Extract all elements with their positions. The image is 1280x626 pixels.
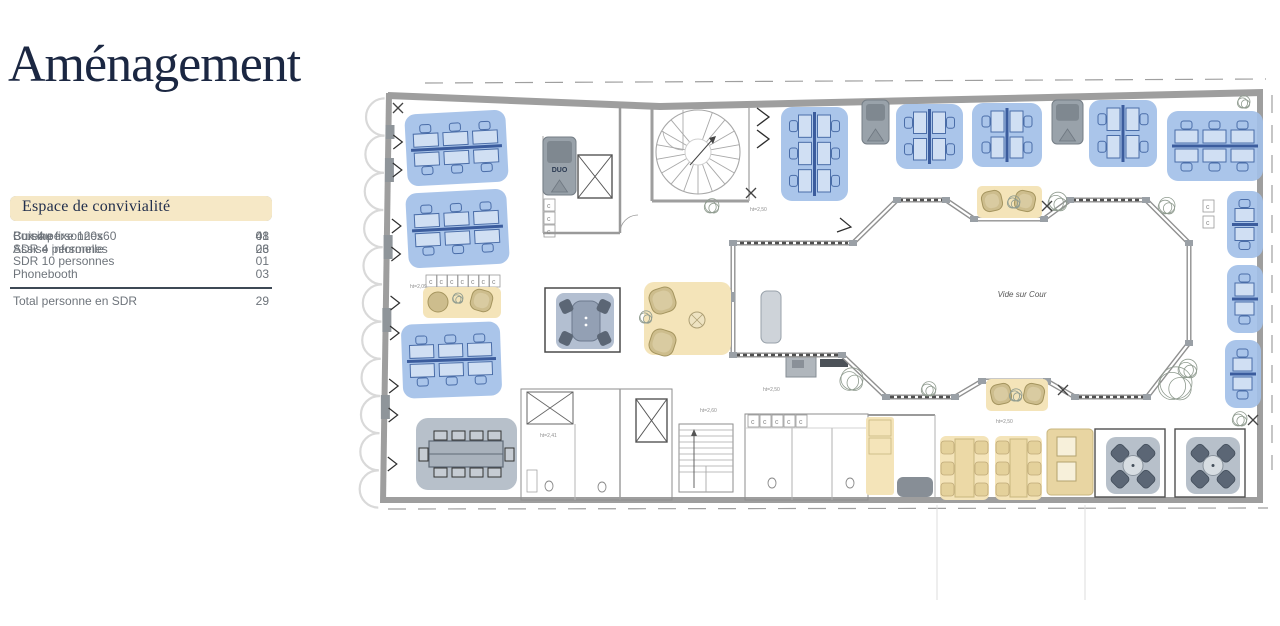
desk-cluster — [972, 103, 1042, 167]
desk-cluster — [1225, 340, 1261, 408]
svg-text:c: c — [450, 279, 454, 286]
desk-cluster — [401, 321, 503, 398]
phonebooth: DUO — [543, 137, 576, 195]
svg-text:c: c — [547, 216, 551, 223]
desk-cluster — [1167, 111, 1263, 181]
desk-cluster — [1089, 100, 1157, 167]
svg-text:c: c — [461, 279, 465, 286]
plant — [840, 372, 859, 391]
plant — [1233, 412, 1247, 426]
svg-text:c: c — [547, 203, 551, 210]
dimension-label: ht=2,50 — [996, 419, 1013, 425]
dimension-label: ht=2,50 — [763, 387, 780, 393]
desk-cluster — [781, 107, 848, 201]
slide: Aménagement Espace de travail Bureau fix… — [0, 0, 1280, 626]
svg-text:c: c — [429, 279, 433, 286]
svg-text:c: c — [471, 279, 475, 286]
svg-text:c: c — [440, 279, 444, 286]
plant — [922, 382, 936, 396]
dimension-label: ht=2,09 — [410, 284, 427, 290]
desk-cluster — [1227, 191, 1263, 258]
dimension-label: ht=2,50 — [750, 207, 767, 213]
plant — [1160, 367, 1192, 399]
dimension-label: ht=2,60 — [700, 408, 717, 414]
svg-text:c: c — [1206, 204, 1210, 211]
courtyard-label: Vide sur Cour — [998, 290, 1047, 299]
svg-text:c: c — [1206, 220, 1210, 227]
svg-text:c: c — [799, 419, 803, 426]
desk-cluster — [405, 188, 510, 268]
plant — [1159, 197, 1175, 213]
svg-text:c: c — [751, 419, 755, 426]
desk-cluster — [404, 109, 509, 186]
desk-cluster — [1227, 265, 1263, 333]
plant — [1238, 96, 1250, 108]
plant — [841, 368, 863, 390]
phonebooth — [862, 100, 889, 144]
svg-text:c: c — [775, 419, 779, 426]
phonebooth — [1052, 100, 1083, 144]
svg-text:c: c — [482, 279, 486, 286]
kitchen-table — [940, 436, 989, 500]
meeting-rooms — [416, 288, 1240, 494]
dimension-label: ht=2,41 — [540, 433, 557, 439]
phonebooth-label: DUO — [552, 167, 568, 174]
kitchen-table — [995, 436, 1042, 500]
desk-cluster — [896, 104, 963, 169]
svg-text:c: c — [763, 419, 767, 426]
social-zones — [423, 186, 1093, 500]
svg-text:c: c — [787, 419, 791, 426]
booth-seating — [1047, 429, 1093, 495]
kitchen-counter — [866, 417, 894, 495]
svg-text:c: c — [547, 229, 551, 236]
floor-plan: cccccccccccccccccDUOht=2,50ht=2,50ht=2,4… — [0, 0, 1280, 626]
svg-text:c: c — [492, 279, 496, 286]
